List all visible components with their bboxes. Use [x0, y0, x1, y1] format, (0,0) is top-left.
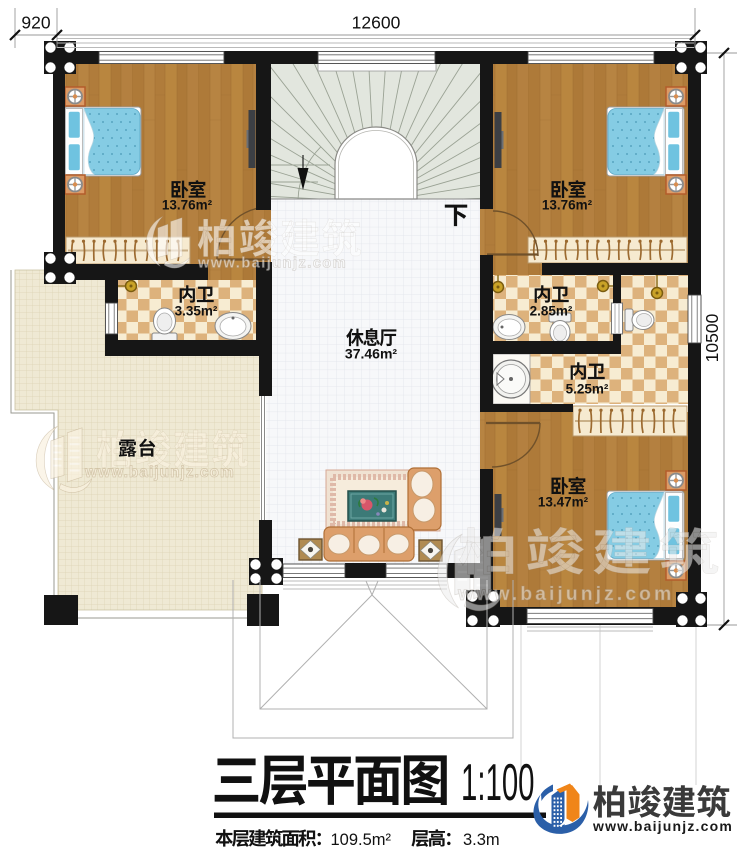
svg-text:10500: 10500: [702, 313, 722, 362]
svg-text:www.baijunjz.com: www.baijunjz.com: [592, 818, 733, 834]
svg-text:1:100: 1:100: [461, 753, 535, 811]
svg-text:www.baijunjz.com: www.baijunjz.com: [197, 256, 347, 272]
svg-text:37.46m²: 37.46m²: [345, 346, 397, 362]
svg-text:3.35m²: 3.35m²: [175, 304, 218, 319]
svg-text:3.3m: 3.3m: [463, 831, 500, 849]
svg-text:920: 920: [21, 13, 50, 33]
svg-text:12600: 12600: [352, 13, 401, 33]
svg-text:www.baijunjz.com: www.baijunjz.com: [457, 583, 674, 605]
svg-text:www.baijunjz.com: www.baijunjz.com: [84, 464, 235, 481]
svg-text:5.25m²: 5.25m²: [566, 382, 609, 397]
svg-text:13.47m²: 13.47m²: [538, 495, 589, 510]
svg-text:13.76m²: 13.76m²: [162, 198, 213, 213]
svg-text:2.85m²: 2.85m²: [530, 304, 573, 319]
svg-text:13.76m²: 13.76m²: [542, 198, 593, 213]
svg-text:109.5m²: 109.5m²: [331, 831, 392, 849]
